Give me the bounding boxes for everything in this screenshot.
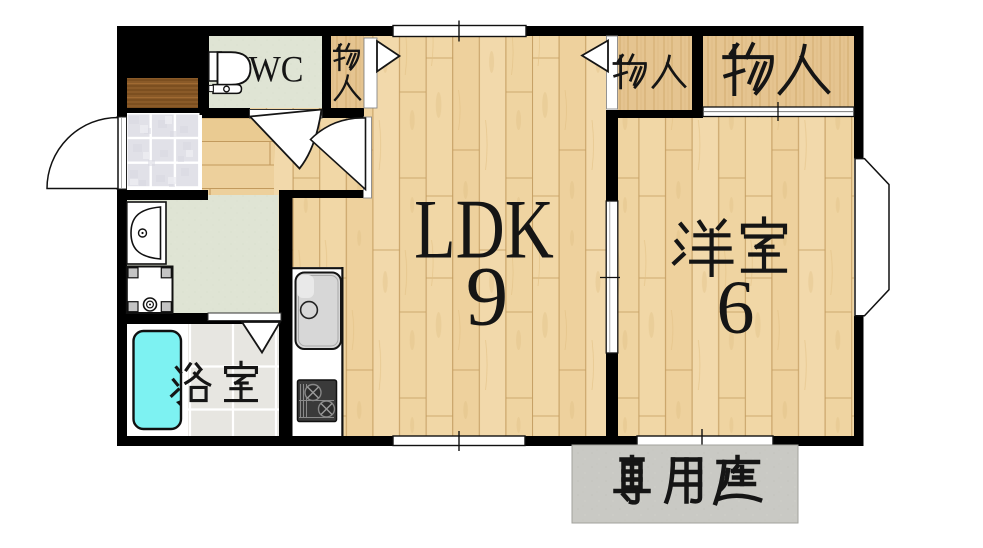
- svg-text:6: 6: [717, 266, 755, 350]
- svg-text:9: 9: [466, 249, 509, 343]
- svg-text:WC: WC: [249, 48, 304, 90]
